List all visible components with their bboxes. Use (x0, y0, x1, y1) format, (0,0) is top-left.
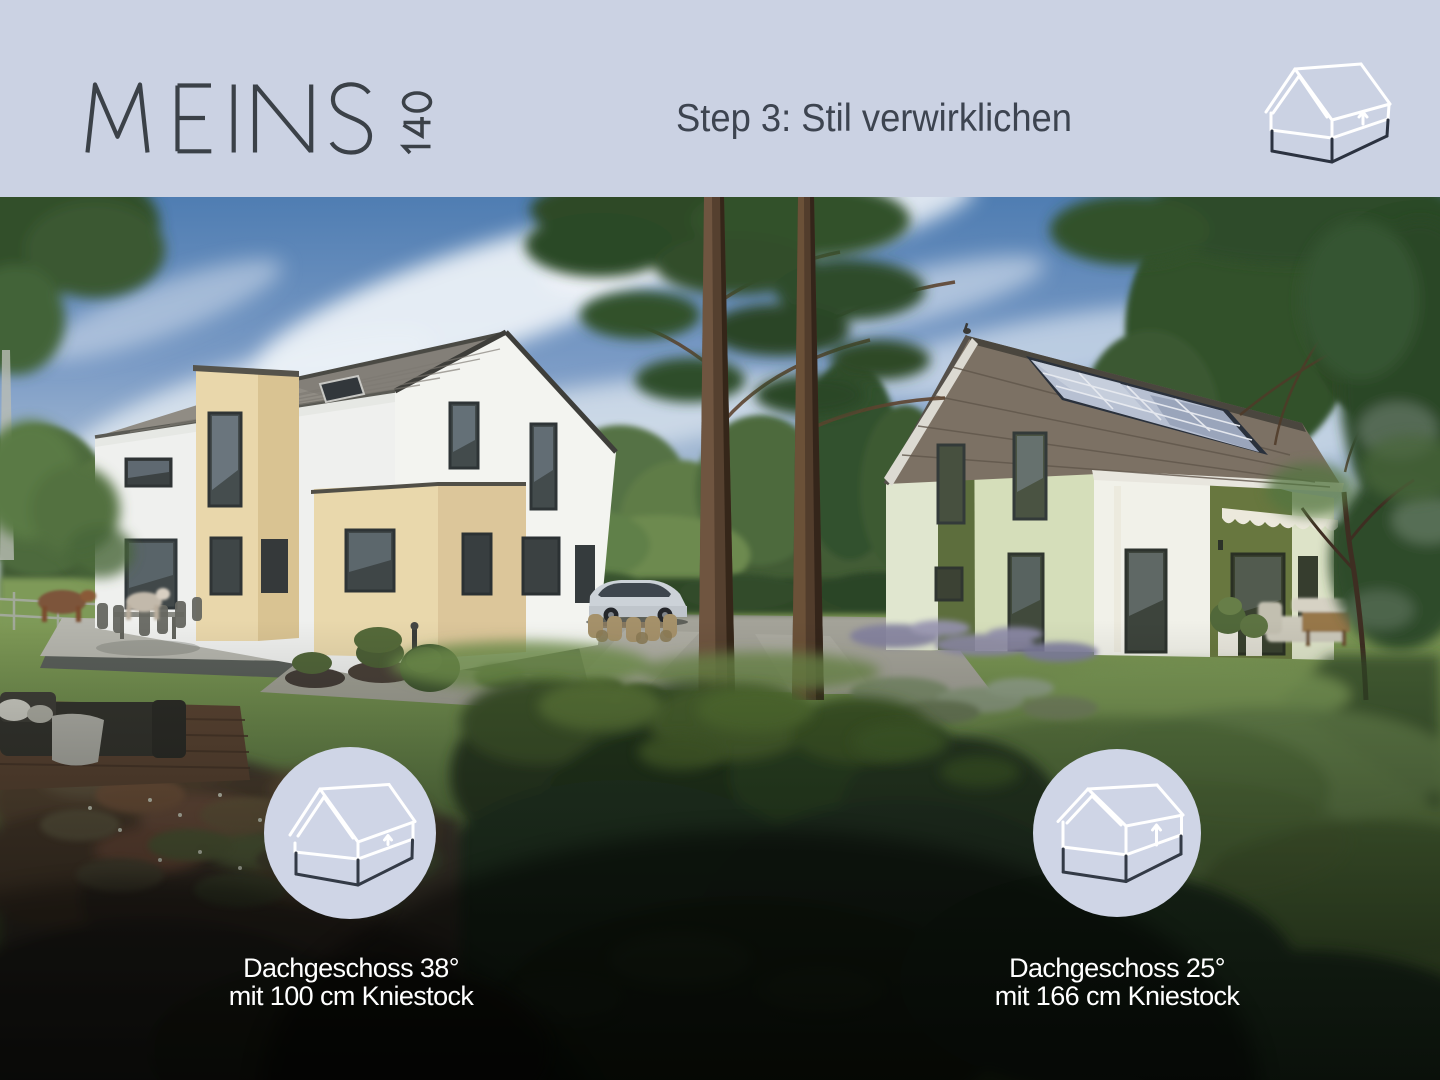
svg-text:Step 3: Stil verwirklichen: Step 3: Stil verwirklichen (676, 97, 1072, 140)
